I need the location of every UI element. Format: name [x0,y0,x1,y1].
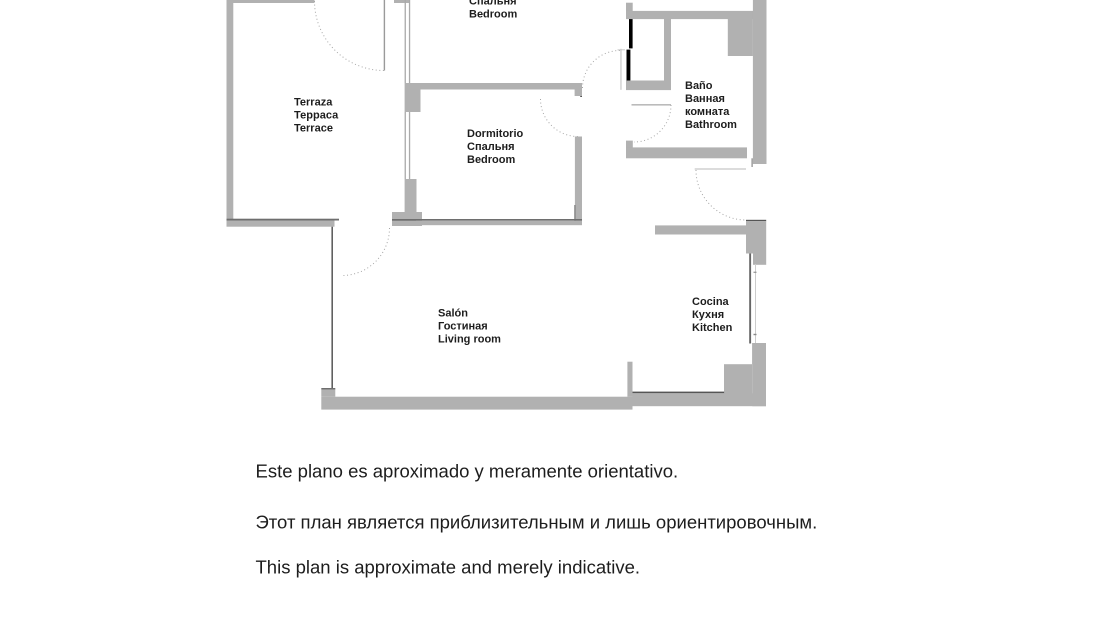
svg-text:комната: комната [685,106,730,118]
svg-text:Гостиная: Гостиная [438,321,488,333]
svg-text:Kitchen: Kitchen [692,322,733,334]
svg-text:Living room: Living room [438,334,501,346]
svg-text:Bedroom: Bedroom [469,9,518,21]
svg-text:Este plano es aproximado y mer: Este plano es aproximado y meramente ori… [256,461,679,482]
svg-text:Cocina: Cocina [692,296,730,308]
svg-text:Salón: Salón [438,308,468,320]
svg-text:Dormitorio: Dormitorio [467,128,524,140]
svg-text:Кухня: Кухня [692,309,724,321]
svg-text:Bathroom: Bathroom [685,119,737,131]
svg-text:Baño: Baño [685,80,713,92]
svg-text:This plan is approximate and m: This plan is approximate and merely indi… [256,557,641,578]
svg-text:Terrace: Terrace [294,123,333,135]
svg-text:Спальня: Спальня [467,141,515,153]
svg-text:Bedroom: Bedroom [467,154,516,166]
svg-text:Terraza: Terraza [294,97,333,109]
svg-text:Ванная: Ванная [685,93,725,105]
svg-text:Этот план является приблизител: Этот план является приблизительным и лиш… [256,512,818,533]
svg-text:Терраса: Терраса [294,110,339,122]
svg-text:Спальня: Спальня [469,0,517,8]
